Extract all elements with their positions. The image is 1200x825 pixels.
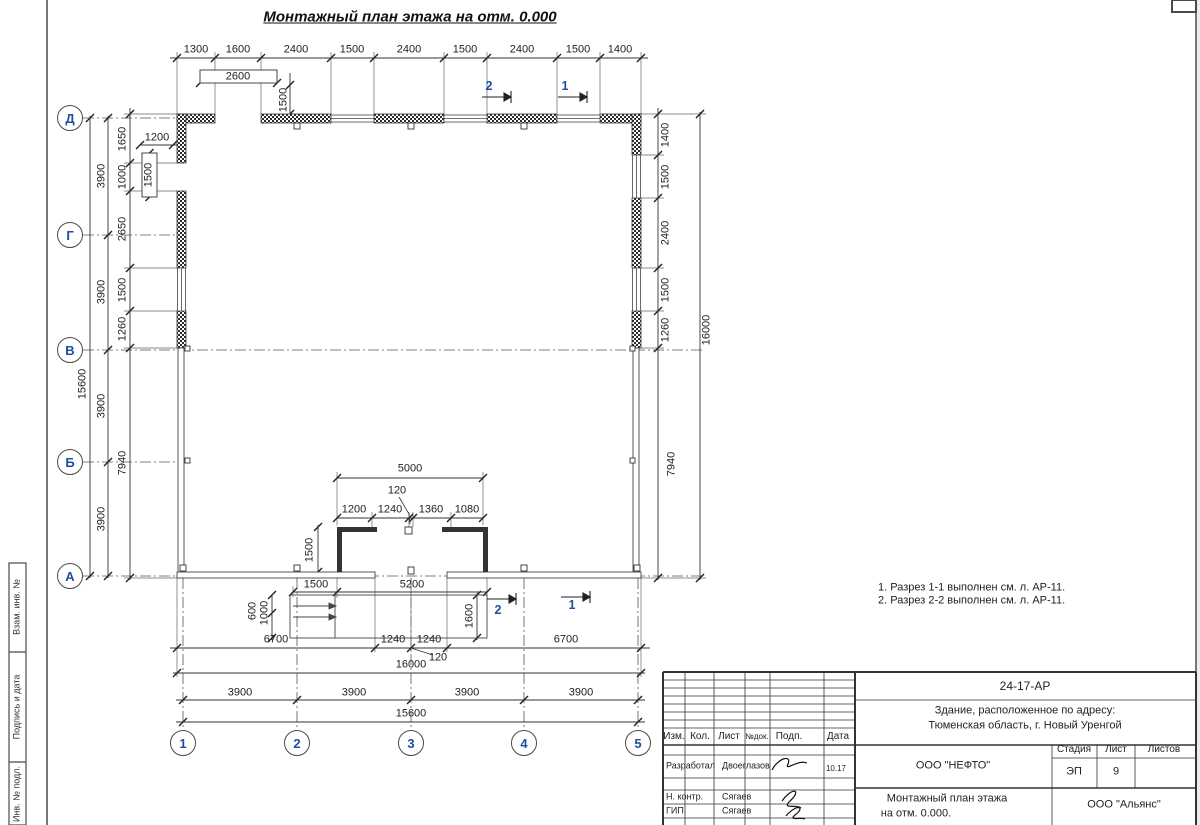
tb-header-listov: Листов <box>1148 745 1181 755</box>
axis-col-4: 4 <box>511 730 537 756</box>
dim-opening-height: 1500 <box>279 88 290 112</box>
dim-window-width: 1200 <box>145 133 169 144</box>
titleblock-object-line2: Тюменская область, г. Новый Уренгой <box>928 721 1121 732</box>
dim-bottom-3900-2: 3900 <box>342 688 366 699</box>
dim-vestibule-depth: 1500 <box>305 538 316 562</box>
section-mark-2-top: 2 <box>486 80 493 93</box>
dim-left-total: 15600 <box>78 369 89 400</box>
axis-row-V: В <box>57 337 83 363</box>
titleblock-stage: ЭП <box>1066 767 1082 778</box>
column-markers <box>180 123 640 574</box>
dim-top-1500a: 1500 <box>340 45 364 56</box>
dim-vest-1080: 1080 <box>455 505 479 516</box>
tb-header-kol: Кол. <box>690 732 710 742</box>
dim-left-1000: 1000 <box>118 165 129 189</box>
dim-porch-1500: 1500 <box>304 580 328 591</box>
dim-porch-5200: 5200 <box>400 580 424 591</box>
tb-date-1017: 10.17 <box>826 765 846 773</box>
dim-window-height: 1500 <box>144 163 155 187</box>
dim-bottom-120: 120 <box>429 653 447 664</box>
dim-right-1400: 1400 <box>661 123 672 147</box>
dim-left-3900-2: 3900 <box>97 280 108 304</box>
dim-right-total: 16000 <box>702 315 713 346</box>
dim-right-1500b: 1500 <box>661 278 672 302</box>
section-mark-1-bottom: 1 <box>569 599 576 612</box>
tb-role-nkontr: Н. контр. <box>666 793 703 802</box>
axis-col-2: 2 <box>284 730 310 756</box>
titleblock-sheet: 9 <box>1113 767 1119 778</box>
sidebar-vzam-inv: Взам. инв. № <box>13 579 22 635</box>
dim-top-1300: 1300 <box>184 45 208 56</box>
sidebar-inv-podl: Инв. № подл. <box>13 766 22 822</box>
tb-name-syagaev-2: Сягаев <box>722 807 751 816</box>
tb-header-data: Дата <box>827 732 849 742</box>
note-line-1: 1. Разрез 1-1 выполнен см. л. АР-11. <box>878 583 1065 594</box>
dim-top-1500b: 1500 <box>453 45 477 56</box>
signature <box>772 758 807 819</box>
dim-left-1650: 1650 <box>118 127 129 151</box>
tb-header-stadiya: Стадия <box>1057 745 1091 755</box>
axis-col-5: 5 <box>625 730 651 756</box>
drawing-sheet: Д Г В Б А 1 2 3 4 5 Монтажный план этажа… <box>0 0 1200 825</box>
titleblock-title-line2: на отм. 0.000. <box>881 809 951 820</box>
porch <box>290 595 487 638</box>
dim-opening-width: 2600 <box>226 72 250 83</box>
dim-right-7940: 7940 <box>667 452 678 476</box>
tb-header-podp: Подп. <box>776 732 803 742</box>
tb-header-ndok: №док. <box>745 733 768 741</box>
dim-bottom-1240b: 1240 <box>417 635 441 646</box>
section-mark-1-top: 1 <box>562 80 569 93</box>
titleblock-firm: ООО "Альянс" <box>1087 800 1161 811</box>
axis-row-A: А <box>57 563 83 589</box>
dim-bottom-total: 16000 <box>396 660 427 671</box>
dim-right-2400: 2400 <box>661 221 672 245</box>
tb-header-list: Лист <box>718 732 740 742</box>
dim-top-2400a: 2400 <box>284 45 308 56</box>
axis-row-B: Б <box>57 449 83 475</box>
note-line-2: 2. Разрез 2-2 выполнен см. л. АР-11. <box>878 596 1065 607</box>
dim-vest-1240: 1240 <box>378 505 402 516</box>
dim-porch-1600: 1600 <box>465 604 476 628</box>
dim-bottom-1240a: 1240 <box>381 635 405 646</box>
dim-porch-600: 600 <box>248 602 259 620</box>
dim-left-3900-1: 3900 <box>97 164 108 188</box>
dim-bottom-6700b: 6700 <box>554 635 578 646</box>
dim-top-1600: 1600 <box>226 45 250 56</box>
axis-col-3: 3 <box>398 730 424 756</box>
dim-porch-1000: 1000 <box>260 601 271 625</box>
dim-vestibule-120: 120 <box>388 486 406 497</box>
dim-left-3900-3: 3900 <box>97 394 108 418</box>
titleblock-title-line1: Монтажный план этажа <box>887 794 1008 805</box>
tb-name-syagaev-1: Сягаев <box>722 793 751 802</box>
dim-vestibule-width: 5000 <box>398 464 422 475</box>
floor-plan-drawing <box>0 0 1200 825</box>
dim-right-1260: 1260 <box>661 318 672 342</box>
tb-name-dvoeglazov: Двоеглазов <box>722 762 770 771</box>
titleblock-object-line1: Здание, расположенное по адресу: <box>935 706 1116 717</box>
tb-header-izm: Изм. <box>663 732 684 742</box>
axis-row-D: Д <box>57 105 83 131</box>
sheet-frame <box>47 0 1200 825</box>
axis-col-1: 1 <box>170 730 196 756</box>
dim-left-2650: 2650 <box>118 217 129 241</box>
section-mark-2-bottom: 2 <box>495 604 502 617</box>
section-marks <box>482 91 590 605</box>
dim-bottom-axes-total: 15600 <box>396 709 427 720</box>
dim-bottom-6700a: 6700 <box>264 635 288 646</box>
sidebar-podpis-data: Подпись и дата <box>13 675 22 740</box>
tb-role-razrabotal: Разработал <box>666 762 715 771</box>
dim-right-1500a: 1500 <box>661 165 672 189</box>
walls <box>177 114 641 638</box>
dim-vest-1360: 1360 <box>419 505 443 516</box>
dim-left-3900-4: 3900 <box>97 507 108 531</box>
dim-bottom-3900-1: 3900 <box>228 688 252 699</box>
dim-top-2400b: 2400 <box>397 45 421 56</box>
tb-role-gip: ГИП <box>666 807 684 816</box>
dim-left-7940: 7940 <box>118 451 129 475</box>
dim-left-1260: 1260 <box>118 317 129 341</box>
dim-top-2400c: 2400 <box>510 45 534 56</box>
axis-row-G: Г <box>57 222 83 248</box>
window-left <box>178 268 186 311</box>
dim-top-1400: 1400 <box>608 45 632 56</box>
window-top <box>331 115 600 122</box>
drawing-title: Монтажный план этажа на отм. 0.000 <box>263 10 556 25</box>
dim-vest-1200: 1200 <box>342 505 366 516</box>
dim-bottom-3900-3: 3900 <box>455 688 479 699</box>
dim-top-1500c: 1500 <box>566 45 590 56</box>
tb-header-list2: Лист <box>1105 745 1127 755</box>
titleblock-company: ООО "НЕФТО" <box>916 761 990 772</box>
vestibule-walls <box>337 527 488 572</box>
dim-bottom-3900-4: 3900 <box>569 688 593 699</box>
titleblock-doc-number: 24-17-АР <box>1000 680 1051 692</box>
dim-left-1500: 1500 <box>118 278 129 302</box>
